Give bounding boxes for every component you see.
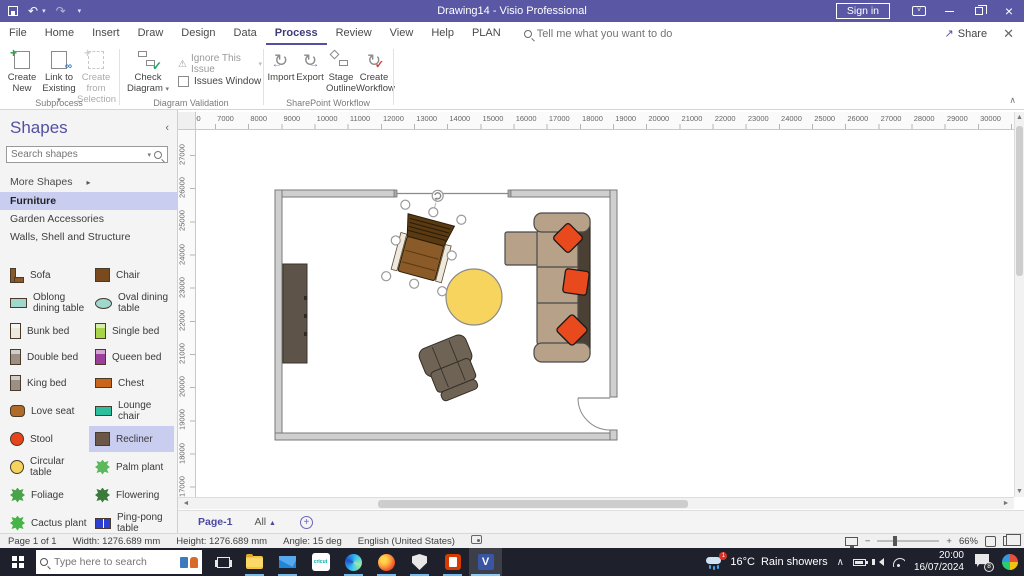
zoom-slider-thumb[interactable] — [893, 536, 897, 546]
issues-window-checkbox[interactable]: Issues Window — [178, 76, 261, 87]
ruler-label: 12000 — [383, 114, 404, 123]
office-icon — [445, 554, 461, 570]
shape-search-box[interactable]: ▾ — [6, 146, 168, 163]
clock-time: 20:00 — [914, 550, 964, 562]
circular-table[interactable] — [446, 269, 502, 325]
shape-label: Cactus plant — [31, 518, 87, 529]
create-workflow-icon: ↻✓ — [367, 52, 381, 69]
windows-logo-icon — [12, 556, 24, 568]
shape-label: Oval dining table — [118, 292, 172, 314]
weather-temp: 16°C — [730, 556, 755, 568]
shape-item-recliner[interactable]: Recliner — [89, 426, 174, 452]
weather-rain-icon: 1 — [706, 555, 724, 570]
scroll-up-icon[interactable]: ▲ — [1015, 112, 1024, 123]
drawing-page[interactable] — [196, 130, 1014, 497]
taskbar-app-office[interactable] — [436, 548, 469, 576]
fit-page-icon[interactable] — [985, 536, 996, 547]
ruler-label: 30000 — [980, 114, 1001, 123]
tab-plan[interactable]: PLAN — [463, 22, 510, 45]
switch-windows-icon[interactable] — [1003, 536, 1016, 546]
ruler-label: 22000 — [715, 114, 736, 123]
shapes-panel-title: Shapes — [0, 110, 177, 138]
vertical-scrollbar[interactable]: ▲ ▼ — [1014, 112, 1024, 497]
taskbar-app-visio[interactable]: V — [469, 548, 502, 576]
create-new-icon: + — [14, 51, 30, 69]
more-shapes-arrow-icon: ▸ — [86, 178, 90, 187]
shape-label: Chair — [116, 270, 140, 281]
horizontal-ruler: 6000700080009000100001100012000130001400… — [196, 112, 1014, 130]
shape-grid: SofaChairOblong dining tableOval dining … — [4, 262, 177, 533]
zoom-out-button[interactable]: − — [865, 536, 871, 547]
status-height[interactable]: Height: 1276.689 mm — [168, 536, 275, 547]
console-table[interactable] — [283, 264, 307, 363]
create-from-selection-button[interactable]: + Create from Selection — [77, 48, 115, 105]
taskbar-app-file-explorer[interactable] — [238, 548, 271, 576]
love-seat-icon — [10, 405, 25, 417]
stencil-furniture[interactable]: Furniture — [0, 192, 177, 210]
ruler-label: 27000 — [881, 114, 902, 123]
tell-me-search[interactable] — [524, 28, 717, 40]
taskbar-clock[interactable]: 20:00 16/07/2024 — [914, 550, 964, 574]
shape-label: Double bed — [27, 352, 78, 363]
close-button[interactable]: × — [994, 0, 1024, 22]
start-button[interactable] — [0, 548, 36, 576]
shape-item-double-bed[interactable]: Double bed — [4, 344, 89, 370]
palm-plant-icon — [95, 460, 110, 475]
group-subprocess: + Create New ∞ Link to Existing ▾ + Crea… — [0, 45, 118, 109]
ruler-label: 18000 — [178, 438, 187, 468]
shape-label: Foliage — [31, 490, 64, 501]
cricut-icon: cricut — [312, 553, 330, 571]
ruler-label: 8000 — [250, 114, 267, 123]
stencil-list: Furniture Garden Accessories Walls, Shel… — [0, 192, 177, 246]
more-shapes-button[interactable]: More Shapes▸ — [10, 176, 90, 188]
ruler-label: 13000 — [416, 114, 437, 123]
circular-table-icon — [10, 460, 24, 474]
status-language[interactable]: English (United States) — [350, 536, 463, 547]
ruler-label: 25000 — [178, 206, 187, 236]
shape-item-circular-table[interactable]: Circular table — [4, 452, 89, 482]
shape-item-sofa[interactable]: Sofa — [4, 262, 89, 288]
collapse-panel-icon[interactable]: ‹ — [165, 122, 169, 134]
stage-outline-button[interactable]: Stage Outline — [324, 48, 358, 94]
drawing-canvas-area: 6000700080009000100001100012000130001400… — [178, 110, 1024, 510]
all-pages-caret-icon: ▲ — [269, 520, 276, 527]
sofa-icon — [10, 268, 24, 283]
group-sharepoint-workflow: ↻← Import ↻→ Export Stage Outline ↻✓ Cre… — [264, 45, 392, 109]
shape-item-chair[interactable]: Chair — [89, 262, 174, 288]
status-width[interactable]: Width: 1276.689 mm — [65, 536, 169, 547]
wifi-icon[interactable] — [893, 558, 905, 567]
taskbar-app-mail[interactable] — [271, 548, 304, 576]
ruler-label: 19000 — [615, 114, 636, 123]
shape-item-palm-plant[interactable]: Palm plant — [89, 452, 174, 482]
ruler-label: 21000 — [178, 339, 187, 369]
windows-taskbar: cricut V 1 16°C Rain showers ∧ 20:00 16/… — [0, 548, 1024, 576]
horizontal-scroll-thumb[interactable] — [378, 500, 688, 508]
import-icon: ↻← — [274, 52, 288, 69]
oblong-dining-table-icon — [10, 298, 27, 308]
zoom-slider[interactable] — [877, 540, 939, 542]
shape-item-ping-pong-table[interactable]: Ping-pong table — [89, 508, 174, 533]
ribbon: + Create New ∞ Link to Existing ▾ + Crea… — [0, 45, 1024, 110]
ruler-label: 7000 — [217, 114, 234, 123]
weather-condition: Rain showers — [761, 556, 828, 568]
ruler-label: 15000 — [483, 114, 504, 123]
search-highlight-icon[interactable] — [180, 557, 198, 568]
page-tab-bar: Page-1 All ▲ + — [178, 510, 1024, 533]
shape-item-single-bed[interactable]: Single bed — [89, 318, 174, 344]
status-page-info[interactable]: Page 1 of 1 — [0, 536, 65, 547]
tab-data[interactable]: Data — [225, 22, 266, 45]
notification-center-button[interactable]: 8 — [973, 553, 993, 571]
battery-icon[interactable] — [853, 559, 866, 566]
shape-label: Lounge chair — [118, 400, 172, 422]
tab-process[interactable]: Process — [266, 22, 327, 45]
shape-label: Queen bed — [112, 352, 162, 363]
ruler-label: 25000 — [814, 114, 835, 123]
shape-label: Oblong dining table — [33, 292, 87, 314]
ruler-label: 10000 — [317, 114, 338, 123]
ruler-label: 29000 — [947, 114, 968, 123]
mail-icon — [279, 556, 296, 568]
file-explorer-icon — [246, 556, 263, 569]
search-icon — [40, 558, 48, 566]
check-diagram-icon: ✓ — [138, 50, 158, 70]
ribbon-display-options-icon: ˅ — [912, 6, 926, 16]
single-bed-icon — [95, 323, 106, 339]
close-drawing-icon[interactable]: ✕ — [1003, 26, 1014, 42]
taskbar-search-input[interactable] — [54, 556, 174, 568]
sign-in-button[interactable]: Sign in — [836, 3, 890, 19]
task-view-button[interactable] — [208, 548, 238, 576]
ruler-label: 11000 — [350, 114, 370, 123]
ruler-corner — [178, 112, 196, 130]
ruler-label: 16000 — [516, 114, 537, 123]
insert-page-button[interactable]: + — [300, 516, 313, 529]
search-icon — [524, 30, 532, 38]
tab-insert[interactable]: Insert — [83, 22, 129, 45]
shape-label: Chest — [118, 378, 144, 389]
ruler-label: 28000 — [914, 114, 935, 123]
zoom-in-button[interactable]: + — [946, 536, 952, 547]
taskbar-app-edge[interactable] — [337, 548, 370, 576]
title-bar: ↶ ▾ ↷ ▾ Drawing14 - Visio Professional S… — [0, 0, 1024, 22]
ruler-label: 24000 — [178, 239, 187, 269]
shape-search-input[interactable] — [7, 149, 144, 160]
tab-home[interactable]: Home — [36, 22, 83, 45]
tell-me-input[interactable] — [537, 28, 717, 40]
checkbox-icon — [178, 76, 189, 87]
import-button[interactable]: ↻← Import — [266, 48, 296, 83]
ruler-label: 22000 — [178, 305, 187, 335]
tab-view[interactable]: View — [381, 22, 423, 45]
shape-label: Recliner — [116, 434, 153, 445]
ribbon-tab-bar: File Home Insert Draw Design Data Proces… — [0, 22, 1024, 45]
share-icon: ↗ — [945, 27, 954, 40]
taskbar-app-cricut[interactable]: cricut — [304, 548, 337, 576]
ruler-label: 20000 — [648, 114, 669, 123]
shape-label: Ping-pong table — [117, 512, 172, 533]
shape-label: King bed — [27, 378, 66, 389]
recliner-icon — [95, 432, 110, 446]
group-diagram-validation: ✓ Check Diagram ▾ ⚠ Ignore This Issue ▾ … — [120, 45, 262, 109]
restore-icon — [975, 7, 983, 15]
stencil-garden-accessories[interactable]: Garden Accessories — [0, 210, 177, 228]
vertical-scroll-thumb[interactable] — [1016, 126, 1023, 276]
create-workflow-button[interactable]: ↻✓ Create Workflow — [356, 48, 392, 94]
ruler-label: 27000 — [178, 140, 187, 170]
export-button[interactable]: ↻→ Export — [295, 48, 325, 83]
ruler-label: 17000 — [178, 471, 187, 497]
ruler-label: 21000 — [682, 114, 703, 123]
oval-dining-table-icon — [95, 298, 112, 309]
page-tab-page1[interactable]: Page-1 — [178, 516, 244, 528]
horizontal-scrollbar[interactable]: ◄ ► — [178, 497, 1014, 509]
search-dropdown-icon[interactable]: ▾ — [144, 151, 154, 159]
weather-widget[interactable]: 1 16°C Rain showers — [706, 555, 827, 570]
zoom-level[interactable]: 66% — [959, 536, 978, 547]
flowering-icon — [95, 488, 110, 503]
tray-chevron-icon[interactable]: ∧ — [837, 557, 844, 568]
create-from-selection-icon: + — [88, 51, 104, 69]
shape-item-love-seat[interactable]: Love seat — [4, 396, 89, 426]
shape-label: Stool — [30, 434, 53, 445]
minimize-button[interactable] — [934, 0, 964, 22]
shape-item-king-bed[interactable]: King bed — [4, 370, 89, 396]
ruler-label: 19000 — [178, 405, 187, 435]
shape-label: Single bed — [112, 326, 159, 337]
tab-review[interactable]: Review — [327, 22, 381, 45]
taskbar-app-firefox[interactable] — [370, 548, 403, 576]
ruler-label: 26000 — [847, 114, 868, 123]
ruler-label: 20000 — [178, 372, 187, 402]
shape-label: Bunk bed — [27, 326, 69, 337]
ruler-label: 9000 — [284, 114, 301, 123]
presentation-mode-icon[interactable] — [845, 537, 858, 546]
scroll-down-icon[interactable]: ▼ — [1015, 486, 1024, 497]
ping-pong-table-icon — [95, 518, 111, 529]
all-pages-tab[interactable]: All ▲ — [244, 516, 286, 528]
clock-date: 16/07/2024 — [914, 562, 964, 574]
bunk-bed-icon — [10, 323, 21, 339]
stencil-walls-shell-structure[interactable]: Walls, Shell and Structure — [0, 228, 177, 246]
ruler-label: 23000 — [178, 272, 187, 302]
ignore-this-issue-button[interactable]: ⚠ Ignore This Issue ▾ — [178, 53, 262, 75]
shape-label: Palm plant — [116, 462, 163, 473]
task-view-icon — [217, 557, 230, 568]
shapes-panel: Shapes ‹ ▾ More Shapes▸ Furniture Garden… — [0, 110, 178, 533]
notification-count-badge: 8 — [984, 562, 994, 572]
scroll-right-icon[interactable]: ► — [1000, 498, 1012, 509]
taskbar-app-defender[interactable] — [403, 548, 436, 576]
ribbon-display-options-button[interactable]: ˅ — [904, 0, 934, 22]
stage-outline-icon — [331, 50, 351, 70]
shape-label: Circular table — [30, 456, 87, 478]
pillow-middle[interactable] — [562, 268, 589, 295]
tab-draw[interactable]: Draw — [129, 22, 173, 45]
shape-item-cactus-plant[interactable]: Cactus plant — [4, 508, 89, 533]
ruler-label: 18000 — [582, 114, 603, 123]
taskbar-search-box[interactable] — [36, 550, 202, 574]
ruler-label: 17000 — [549, 114, 570, 123]
shape-item-oval-dining-table[interactable]: Oval dining table — [89, 288, 174, 318]
ruler-label: 23000 — [748, 114, 769, 123]
restore-button[interactable] — [964, 0, 994, 22]
tab-help[interactable]: Help — [422, 22, 463, 45]
check-diagram-button[interactable]: ✓ Check Diagram ▾ — [126, 48, 170, 95]
king-bed-icon — [10, 375, 21, 391]
ruler-label: 26000 — [178, 173, 187, 203]
edge-icon — [345, 554, 362, 571]
shape-item-bunk-bed[interactable]: Bunk bed — [4, 318, 89, 344]
minimize-icon — [945, 11, 954, 12]
shape-item-foliage[interactable]: Foliage — [4, 482, 89, 508]
chair-icon — [95, 268, 110, 282]
windows-security-icon — [412, 554, 427, 570]
queen-bed-icon — [95, 349, 106, 365]
colorful-app-icon[interactable] — [1002, 554, 1018, 570]
foliage-icon — [10, 488, 25, 503]
search-icon[interactable] — [154, 151, 162, 159]
export-icon: ↻→ — [303, 52, 317, 69]
cactus-plant-icon — [10, 516, 25, 531]
shape-item-oblong-dining-table[interactable]: Oblong dining table — [4, 288, 89, 318]
shape-item-lounge-chair[interactable]: Lounge chair — [89, 396, 174, 426]
shape-label: Flowering — [116, 490, 159, 501]
stool-icon — [10, 432, 24, 446]
vertical-ruler: 2700026000250002400023000220002100020000… — [178, 130, 196, 497]
scroll-left-icon[interactable]: ◄ — [180, 498, 192, 509]
shape-label: Sofa — [30, 270, 51, 281]
lounge-chair-icon — [95, 406, 112, 416]
collapse-ribbon-icon[interactable]: ∧ — [1009, 95, 1016, 106]
macro-record-icon[interactable] — [463, 535, 490, 547]
status-angle[interactable]: Angle: 15 deg — [275, 536, 350, 547]
ignore-issue-icon: ⚠ — [178, 59, 187, 70]
shape-item-queen-bed[interactable]: Queen bed — [89, 344, 174, 370]
ruler-label: 14000 — [449, 114, 470, 123]
shape-item-stool[interactable]: Stool — [4, 426, 89, 452]
share-button[interactable]: ↗ Share — [945, 27, 988, 40]
chest-icon — [95, 378, 112, 388]
ruler-label: 24000 — [781, 114, 802, 123]
tab-file[interactable]: File — [0, 22, 36, 45]
speaker-icon[interactable] — [875, 558, 884, 566]
create-new-button[interactable]: + Create New — [3, 48, 41, 94]
ruler-label: 6000 — [196, 114, 201, 123]
visio-icon: V — [478, 554, 494, 570]
firefox-icon — [378, 554, 395, 571]
shape-item-flowering[interactable]: Flowering — [89, 482, 174, 508]
link-to-existing-icon: ∞ — [51, 51, 67, 69]
tab-design[interactable]: Design — [172, 22, 224, 45]
double-bed-icon — [10, 349, 21, 365]
status-bar: Page 1 of 1 Width: 1276.689 mm Height: 1… — [0, 533, 1024, 548]
shape-item-chest[interactable]: Chest — [89, 370, 174, 396]
shape-label: Love seat — [31, 406, 74, 417]
